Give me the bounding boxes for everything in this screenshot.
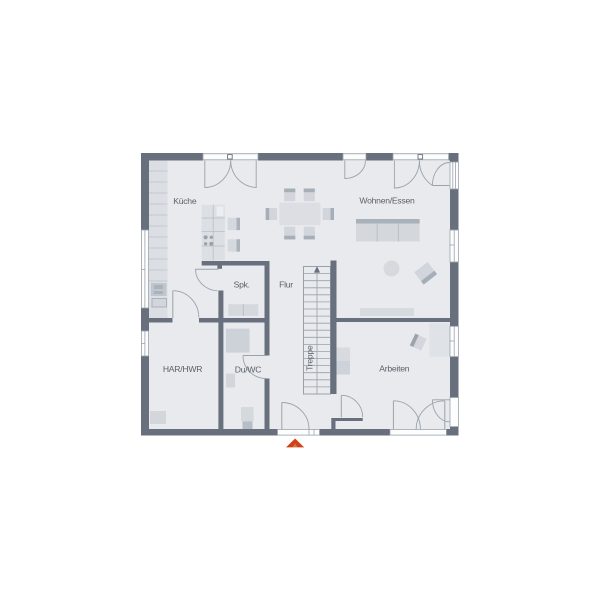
svg-text:Wohnen/Essen: Wohnen/Essen: [359, 195, 415, 205]
svg-text:Küche: Küche: [173, 196, 197, 206]
svg-text:Arbeiten: Arbeiten: [379, 364, 409, 374]
svg-text:Spk.: Spk.: [234, 280, 250, 290]
svg-text:HAR/HWR: HAR/HWR: [163, 364, 202, 374]
svg-text:Du/WC: Du/WC: [235, 364, 261, 374]
svg-text:Flur: Flur: [279, 280, 293, 290]
svg-text:Treppe: Treppe: [304, 345, 314, 371]
